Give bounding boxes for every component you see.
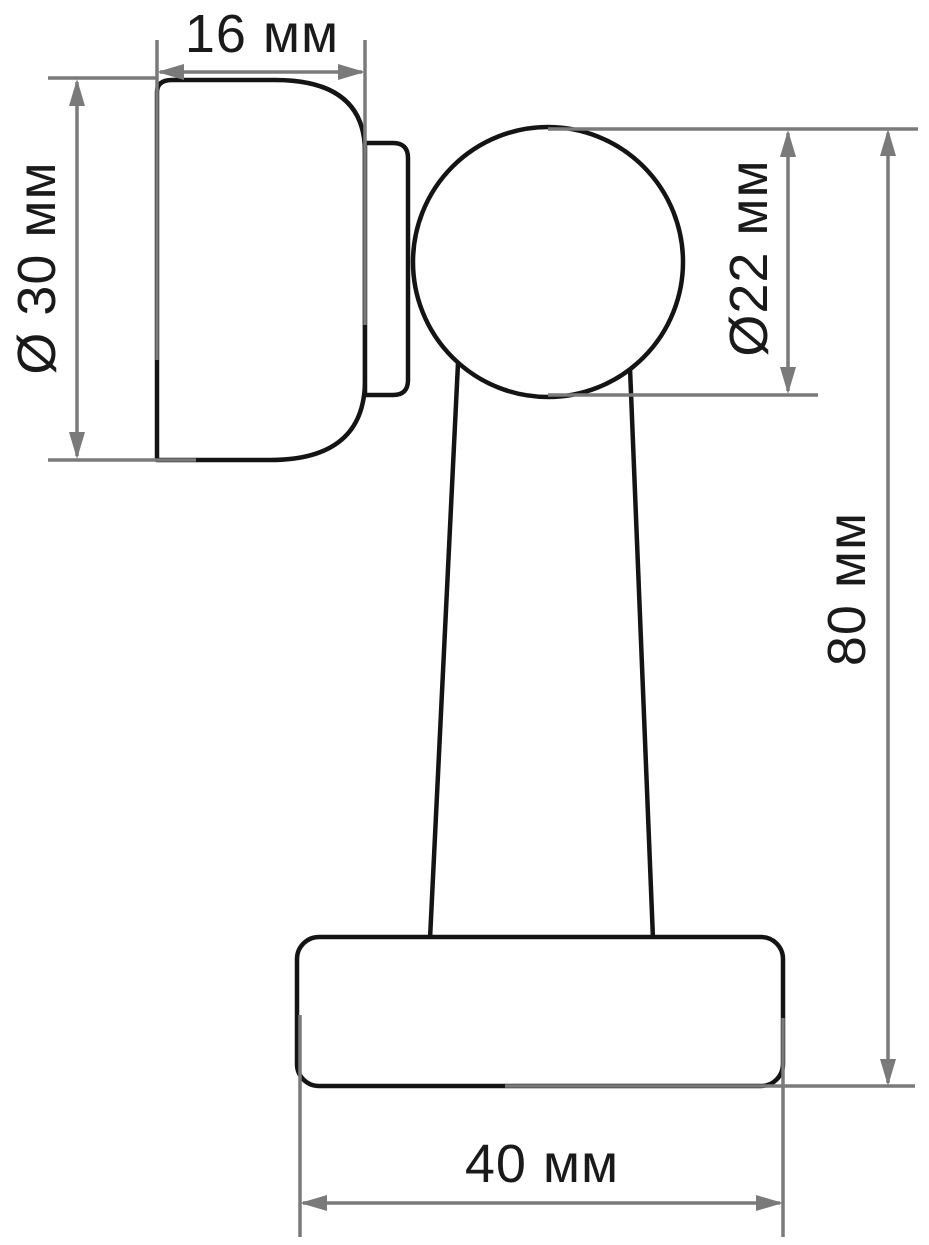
arrowhead-up [880,129,896,156]
base-outline [297,937,783,1086]
technical-drawing-canvas: 16 мм Ø 30 мм Ø22 мм 80 мм [0,0,929,1245]
magnet-step-outline [365,143,408,395]
arrowhead-down [880,1059,896,1086]
arrowhead-left [157,64,184,80]
arrowhead-down [780,367,796,394]
catch-plate-outline [157,80,365,460]
stem-left-edge [430,363,458,939]
dim-label-ball-diameter: Ø22 мм [719,159,779,356]
part-outline [157,80,783,1086]
arrowhead-up [780,130,796,157]
door-stop-dimension-drawing: 16 мм Ø 30 мм Ø22 мм 80 мм [0,0,929,1245]
dim-label-overall-height: 80 мм [817,512,877,666]
dim-label-flange-width: 16 мм [185,4,339,64]
arrowhead-right [756,1195,783,1211]
dim-label-base-width: 40 мм [465,1134,619,1194]
dim-label-flange-diameter: Ø 30 мм [7,161,67,374]
ball-outline [413,127,683,397]
arrowhead-left [300,1195,327,1211]
stem-right-edge [630,368,653,939]
arrowhead-up [69,79,85,106]
arrowhead-right [338,64,365,80]
arrowhead-down [69,432,85,459]
